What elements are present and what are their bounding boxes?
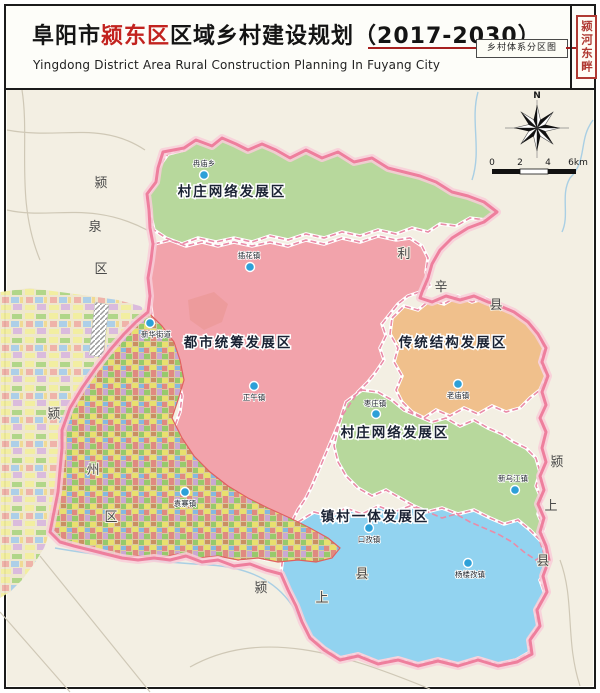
scale-tick: 4 <box>545 158 551 168</box>
town-label: 插花镇 <box>238 250 261 260</box>
neighbor-char: 上 <box>315 591 328 606</box>
region-label: 村庄网络发展区 <box>341 424 450 441</box>
planning-map: N 0 2 4 6km 颍 泉 区 利 辛 县 颍 上 县 颍 上 县 颍 州 … <box>0 0 600 693</box>
title-rule-left <box>368 47 476 49</box>
compass-north-label: N <box>533 91 541 101</box>
neighbor-char: 颍 <box>47 407 60 422</box>
neighbor-char: 颍 <box>94 176 107 191</box>
town-label: 杨楼孜镇 <box>455 569 485 579</box>
neighbor-char: 辛 <box>434 280 447 295</box>
neighbor-char: 县 <box>489 298 502 313</box>
neighbor-char: 县 <box>355 567 368 582</box>
town-label: 冉庙乡 <box>193 158 216 168</box>
town-dot <box>146 319 155 328</box>
town-dot <box>454 380 463 389</box>
scale-tick: 2 <box>517 158 523 168</box>
town-dot <box>365 524 374 533</box>
region-label: 镇村一体发展区 <box>321 508 430 525</box>
neighbor-char: 上 <box>544 499 557 514</box>
neighbor-char: 区 <box>104 510 117 525</box>
page-title: 阜阳市颍东区区域乡村建设规划（2017-2030） <box>32 18 541 50</box>
neighbor-char: 县 <box>536 554 549 569</box>
header-vertical-divider <box>570 6 572 88</box>
town-dot <box>511 486 520 495</box>
region-label: 村庄网络发展区 <box>178 183 287 200</box>
header: 阜阳市颍东区区域乡村建设规划（2017-2030） Yingdong Distr… <box>6 6 594 88</box>
neighbor-char: 州 <box>86 463 99 478</box>
title-highlight: 颍东区 <box>101 24 170 49</box>
town-label: 枣庄镇 <box>364 398 387 408</box>
town-label: 新华街道 <box>141 329 171 339</box>
scale-tick: 6km <box>568 158 588 168</box>
town-dot <box>181 488 190 497</box>
town-dot <box>200 171 209 180</box>
neighbor-char: 颍 <box>550 455 563 470</box>
neighbor-char: 泉 <box>88 219 101 235</box>
town-label: 正午镇 <box>243 392 266 402</box>
town-dot <box>246 263 255 272</box>
neighbor-char: 颍 <box>254 581 267 596</box>
town-label: 口孜镇 <box>358 534 381 544</box>
neighbor-char: 利 <box>397 247 410 262</box>
seal-stamp: 颍河东畔 <box>576 15 597 79</box>
town-dot <box>250 382 259 391</box>
region-town-village-integration <box>281 506 548 664</box>
town-dot <box>372 410 381 419</box>
neighbor-char: 区 <box>94 262 107 277</box>
title-prefix: 阜阳市 <box>32 24 101 49</box>
town-label: 老庙镇 <box>447 390 470 400</box>
scale-tick: 0 <box>489 158 495 168</box>
town-label: 新乌江镇 <box>498 473 528 483</box>
town-dot <box>464 559 473 568</box>
region-label: 传统结构发展区 <box>398 334 508 351</box>
page-subtitle: Yingdong District Area Rural Constructio… <box>33 58 440 72</box>
map-type-label: 乡村体系分区图 <box>476 39 568 58</box>
town-label: 袁寨镇 <box>174 498 197 508</box>
region-label: 都市统筹发展区 <box>183 334 293 351</box>
header-divider <box>6 88 594 90</box>
